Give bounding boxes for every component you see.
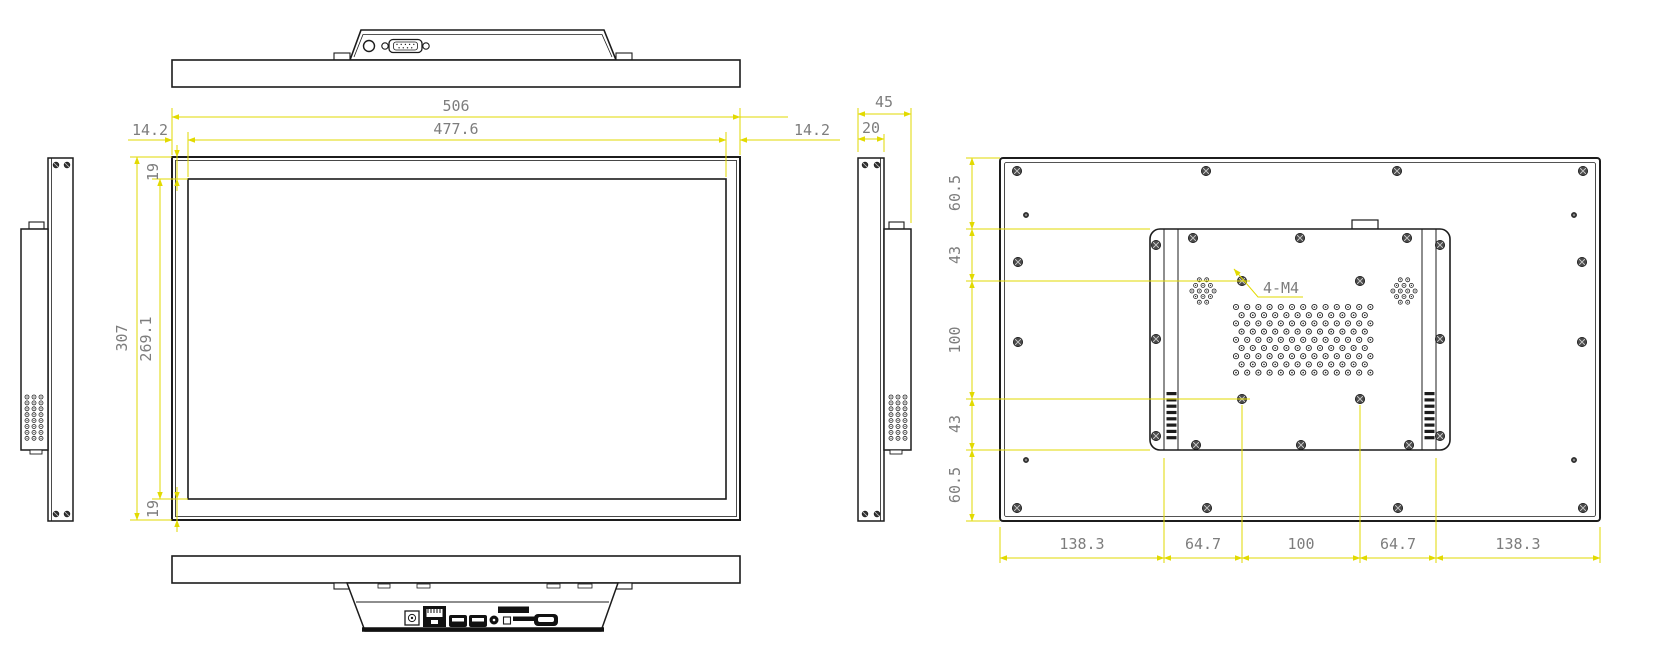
sim-card-slot-icon	[498, 607, 529, 614]
vent-hole	[32, 407, 36, 411]
vent-hole	[39, 425, 43, 429]
vent-hole	[1323, 321, 1328, 326]
vent-slot	[1425, 411, 1435, 414]
case-screw-icon	[1435, 334, 1444, 343]
power-button-icon	[364, 41, 375, 52]
vent-hole	[25, 395, 29, 399]
rear-enclosure	[1150, 229, 1450, 450]
vent-hole	[896, 413, 900, 417]
vent-hole	[1295, 362, 1300, 367]
small-screw-icon	[1023, 457, 1028, 462]
dim-front-height-total: 307	[113, 324, 131, 351]
vent-hole	[1368, 370, 1373, 375]
case-screw-icon	[1201, 166, 1210, 175]
vent-hole	[1284, 313, 1289, 318]
vent-hole	[1256, 370, 1261, 375]
vent-hole	[889, 425, 893, 429]
vent-hole	[1261, 329, 1266, 334]
vent-hole	[1233, 370, 1238, 375]
speaker-hole	[1398, 289, 1402, 293]
vent-hole	[889, 401, 893, 405]
drawing-svg: 506 477.6 14.2 14.2 19 307 269.1 19 45 2…	[0, 0, 1654, 651]
vent-hole	[1323, 337, 1328, 342]
vent-hole	[1329, 329, 1334, 334]
vent-hole	[1351, 362, 1356, 367]
vent-slot	[1167, 405, 1177, 408]
side-screw-icon	[862, 162, 868, 168]
vent-hole	[1239, 345, 1244, 350]
vent-hole	[1284, 362, 1289, 367]
rear-top-connector-bump	[1352, 220, 1378, 229]
speaker-hole	[1197, 289, 1201, 293]
vent-hole	[1323, 354, 1328, 359]
serial-port-db9-icon	[382, 40, 429, 53]
vent-hole	[1301, 304, 1306, 309]
vent-hole	[1267, 370, 1272, 375]
case-screw-icon	[1151, 240, 1160, 249]
side-screw-icon	[862, 511, 868, 517]
dim-rear-v-1: 60.5	[946, 175, 964, 211]
vent-hole	[1301, 354, 1306, 359]
vent-hole	[903, 419, 907, 423]
vent-hole	[39, 430, 43, 434]
technical-drawing-canvas: 506 477.6 14.2 14.2 19 307 269.1 19 45 2…	[0, 0, 1654, 651]
speaker-hole	[1194, 295, 1198, 299]
vent-slot	[1425, 417, 1435, 420]
vent-hole	[1267, 321, 1272, 326]
vent-hole	[1306, 362, 1311, 367]
vent-hole	[1345, 321, 1350, 326]
dim-rear-h-2: 64.7	[1185, 535, 1221, 553]
vent-hole	[1295, 329, 1300, 334]
speaker-hole	[1413, 289, 1417, 293]
side-screw-icon	[874, 162, 880, 168]
vent-hole	[1239, 313, 1244, 318]
vent-hole	[1256, 321, 1261, 326]
vent-hole	[1233, 304, 1238, 309]
vent-hole	[903, 401, 907, 405]
vent-hole	[25, 413, 29, 417]
small-screw-icon	[1023, 212, 1028, 217]
dc-power-jack-icon	[405, 611, 419, 625]
mounting-foot	[616, 53, 632, 60]
case-screw-icon	[1577, 337, 1586, 346]
vent-hole	[25, 430, 29, 434]
dim-side-depth-total: 45	[875, 93, 893, 111]
dim-rear-h-1: 138.3	[1059, 535, 1104, 553]
vent-hole	[896, 419, 900, 423]
vent-hole	[1368, 337, 1373, 342]
vent-hole	[1250, 313, 1255, 318]
vent-hole	[1250, 329, 1255, 334]
vent-hole	[1329, 345, 1334, 350]
case-screw-icon	[1577, 257, 1586, 266]
side-view-left	[21, 158, 73, 521]
dim-rear-v-3: 100	[946, 326, 964, 353]
vent-hole	[32, 395, 36, 399]
vent-slot	[1425, 424, 1435, 427]
vent-hole	[896, 436, 900, 440]
dim-front-width-total: 506	[442, 97, 469, 115]
dim-rear-h-5: 138.3	[1495, 535, 1540, 553]
front-outer-frame	[172, 157, 740, 520]
case-screw-icon	[1151, 431, 1160, 440]
vesa-annotation: 4-M4	[1263, 279, 1299, 297]
vent-hole	[25, 401, 29, 405]
vent-hole	[889, 395, 893, 399]
vent-hole	[903, 413, 907, 417]
vent-hole	[1312, 304, 1317, 309]
speaker-hole	[1201, 295, 1205, 299]
vent-hole	[1357, 304, 1362, 309]
vent-slot	[1167, 430, 1177, 433]
vent-hole	[903, 407, 907, 411]
vent-hole	[1261, 362, 1266, 367]
vent-hole	[1351, 313, 1356, 318]
vent-hole	[1368, 304, 1373, 309]
vent-hole	[896, 430, 900, 434]
vent-hole	[1340, 362, 1345, 367]
vent-hole	[1267, 337, 1272, 342]
vent-hole	[1317, 345, 1322, 350]
vent-hole	[889, 407, 893, 411]
vent-hole	[25, 407, 29, 411]
bottom-view	[172, 556, 740, 631]
case-screw-icon	[1013, 337, 1022, 346]
speaker-hole	[1409, 295, 1413, 299]
vent-hole	[1273, 329, 1278, 334]
vent-hole	[1323, 304, 1328, 309]
dim-rear-v-4: 43	[946, 415, 964, 433]
speaker-hole	[1205, 300, 1209, 304]
vent-slot	[1425, 398, 1435, 401]
vent-hole	[1273, 313, 1278, 318]
vent-hole	[39, 413, 43, 417]
vent-slot	[1167, 424, 1177, 427]
small-screw-icon	[1571, 212, 1576, 217]
vent-hole	[32, 436, 36, 440]
vent-hole	[1267, 304, 1272, 309]
speaker-hole	[1406, 300, 1410, 304]
dim-rear-h-4: 64.7	[1380, 535, 1416, 553]
speaker-hole	[1398, 278, 1402, 282]
vent-slot	[1425, 405, 1435, 408]
mounting-foot	[334, 53, 350, 60]
vent-hole	[39, 395, 43, 399]
speaker-hole	[1395, 283, 1399, 287]
vent-hole	[1357, 370, 1362, 375]
vent-hole	[1340, 329, 1345, 334]
case-screw-icon	[1393, 503, 1402, 512]
vent-hole	[32, 413, 36, 417]
vent-hole	[889, 430, 893, 434]
case-screw-icon	[1578, 166, 1587, 175]
vent-hole	[39, 401, 43, 405]
dim-front-bezel-left: 14.2	[132, 121, 168, 139]
case-screw-icon	[1012, 166, 1021, 175]
case-screw-icon	[1202, 503, 1211, 512]
vent-hole	[1345, 304, 1350, 309]
vent-hole	[1334, 337, 1339, 342]
vent-hole	[889, 419, 893, 423]
vent-slot	[1425, 436, 1435, 439]
vent-hole	[1278, 321, 1283, 326]
case-screw-icon	[1392, 166, 1401, 175]
speaker-hole	[1402, 283, 1406, 287]
case-screw-icon	[1435, 431, 1444, 440]
vent-hole	[25, 425, 29, 429]
dim-rear-v-5: 60.5	[946, 467, 964, 503]
hdmi-port-icon	[534, 614, 558, 626]
vent-slot	[1167, 411, 1177, 414]
speaker-hole	[1409, 283, 1413, 287]
speaker-hole	[1201, 283, 1205, 287]
vent-hole	[1362, 362, 1367, 367]
dim-front-width-display: 477.6	[433, 120, 478, 138]
speaker-hole	[1391, 289, 1395, 293]
vent-hole	[1312, 321, 1317, 326]
vent-slot	[1425, 430, 1435, 433]
vent-hole	[896, 425, 900, 429]
vent-hole	[1301, 370, 1306, 375]
dim-front-height-display: 269.1	[137, 316, 155, 361]
vent-hole	[1334, 354, 1339, 359]
vent-hole	[1368, 354, 1373, 359]
side-screw-icon	[53, 162, 59, 168]
speaker-hole	[1406, 289, 1410, 293]
top-panel-edge	[172, 60, 740, 87]
vent-hole	[1362, 329, 1367, 334]
vent-hole	[1340, 313, 1345, 318]
vent-hole	[1295, 313, 1300, 318]
vent-hole	[1362, 313, 1367, 318]
vent-hole	[903, 395, 907, 399]
speaker-hole	[1190, 289, 1194, 293]
vent-hole	[32, 419, 36, 423]
vent-hole	[896, 395, 900, 399]
case-screw-icon	[1013, 257, 1022, 266]
side-connector-bump	[889, 222, 904, 229]
vent-hole	[1312, 370, 1317, 375]
vent-hole	[1357, 337, 1362, 342]
vent-hole	[1289, 337, 1294, 342]
vent-hole	[1245, 354, 1250, 359]
vent-hole	[1351, 329, 1356, 334]
vent-slot	[1167, 436, 1177, 439]
side-view-right	[858, 158, 911, 521]
vent-hole	[1351, 345, 1356, 350]
vent-hole	[1245, 337, 1250, 342]
vent-hole	[25, 419, 29, 423]
vent-hole	[1250, 345, 1255, 350]
side-screw-icon	[53, 511, 59, 517]
vesa-screw-icon	[1355, 276, 1364, 285]
vent-hole	[1295, 345, 1300, 350]
vent-hole	[1273, 362, 1278, 367]
top-view	[172, 30, 740, 87]
case-screw-icon	[1296, 440, 1305, 449]
vent-hole	[1345, 370, 1350, 375]
case-screw-icon	[1404, 440, 1413, 449]
vent-hole	[896, 401, 900, 405]
side-screw-icon	[64, 511, 70, 517]
vent-hole	[1334, 370, 1339, 375]
vent-hole	[1357, 321, 1362, 326]
vent-hole	[1256, 354, 1261, 359]
vent-hole	[39, 407, 43, 411]
side-screw-icon	[64, 162, 70, 168]
vent-hole	[1289, 304, 1294, 309]
vent-hole	[1284, 345, 1289, 350]
side-tab	[30, 450, 42, 454]
vent-hole	[1301, 337, 1306, 342]
vent-hole	[1256, 337, 1261, 342]
vent-hole	[1306, 313, 1311, 318]
vent-hole	[889, 436, 893, 440]
vent-hole	[1312, 354, 1317, 359]
vent-hole	[1256, 304, 1261, 309]
side-tab	[890, 450, 902, 454]
vent-hole	[1267, 354, 1272, 359]
vent-hole	[25, 436, 29, 440]
front-view	[172, 157, 740, 520]
vent-hole	[1289, 370, 1294, 375]
vent-hole	[1329, 362, 1334, 367]
speaker-hole	[1398, 300, 1402, 304]
vent-hole	[1345, 354, 1350, 359]
speaker-hole	[1402, 295, 1406, 299]
vent-hole	[1245, 321, 1250, 326]
case-screw-icon	[1435, 240, 1444, 249]
side-screw-icon	[874, 511, 880, 517]
vent-hole	[1289, 321, 1294, 326]
vent-hole	[1368, 321, 1373, 326]
vent-hole	[1312, 337, 1317, 342]
vent-slot	[1167, 392, 1177, 395]
dim-side-depth-front: 20	[862, 119, 880, 137]
speaker-hole	[1205, 289, 1209, 293]
vent-hole	[903, 430, 907, 434]
vent-hole	[1329, 313, 1334, 318]
vent-hole	[903, 425, 907, 429]
vent-hole	[1345, 337, 1350, 342]
vent-slot	[1425, 392, 1435, 395]
vent-hole	[1317, 313, 1322, 318]
vent-hole	[1278, 370, 1283, 375]
vent-hole	[1334, 321, 1339, 326]
case-screw-icon	[1578, 503, 1587, 512]
vent-hole	[32, 425, 36, 429]
vent-hole	[1273, 345, 1278, 350]
vesa-screw-icon	[1355, 394, 1364, 403]
vent-hole	[1239, 362, 1244, 367]
side-connector-bump	[29, 222, 44, 229]
vent-hole	[1278, 304, 1283, 309]
case-screw-icon	[1012, 503, 1021, 512]
speaker-hole	[1208, 283, 1212, 287]
vent-hole	[1278, 354, 1283, 359]
vent-hole	[1278, 337, 1283, 342]
vent-slot	[1167, 417, 1177, 420]
case-screw-icon	[1295, 233, 1304, 242]
vent-hole	[1317, 362, 1322, 367]
ethernet-port-icon	[423, 606, 446, 627]
vent-hole	[1301, 321, 1306, 326]
vent-hole	[1245, 304, 1250, 309]
vent-hole	[1362, 345, 1367, 350]
speaker-hole	[1194, 283, 1198, 287]
vent-hole	[1233, 354, 1238, 359]
vent-hole	[1334, 304, 1339, 309]
case-screw-icon	[1191, 440, 1200, 449]
vent-hole	[32, 430, 36, 434]
dim-front-bezel-bottom: 19	[144, 500, 162, 518]
vent-hole	[1245, 370, 1250, 375]
vent-hole	[1340, 345, 1345, 350]
vent-hole	[1289, 354, 1294, 359]
vent-hole	[896, 407, 900, 411]
vent-hole	[1250, 362, 1255, 367]
speaker-hole	[1395, 295, 1399, 299]
vent-hole	[903, 436, 907, 440]
vent-hole	[32, 401, 36, 405]
speaker-hole	[1212, 289, 1216, 293]
dim-rear-h-3: 100	[1287, 535, 1314, 553]
speaker-hole	[1197, 300, 1201, 304]
vent-hole	[1323, 370, 1328, 375]
speaker-hole	[1208, 295, 1212, 299]
led-indicator-icon	[504, 617, 511, 624]
vent-hole	[39, 436, 43, 440]
rear-view	[1000, 158, 1600, 521]
sd-card-slot-icon	[513, 617, 536, 622]
vent-hole	[39, 419, 43, 423]
vent-hole	[889, 413, 893, 417]
vent-hole	[1357, 354, 1362, 359]
vent-hole	[1233, 337, 1238, 342]
vent-hole	[1261, 345, 1266, 350]
vent-hole	[1306, 345, 1311, 350]
case-screw-icon	[1188, 233, 1197, 242]
speaker-hole	[1406, 278, 1410, 282]
dim-front-bezel-top: 19	[144, 163, 162, 181]
bottom-panel-edge	[172, 556, 740, 583]
vent-hole	[1261, 313, 1266, 318]
dim-rear-v-2: 43	[946, 246, 964, 264]
vent-hole	[1233, 321, 1238, 326]
vent-hole	[1317, 329, 1322, 334]
vent-hole	[1284, 329, 1289, 334]
case-screw-icon	[1402, 233, 1411, 242]
case-screw-icon	[1151, 334, 1160, 343]
vent-hole	[1306, 329, 1311, 334]
vent-hole	[1239, 329, 1244, 334]
small-screw-icon	[1571, 457, 1576, 462]
dim-front-bezel-right: 14.2	[794, 121, 830, 139]
